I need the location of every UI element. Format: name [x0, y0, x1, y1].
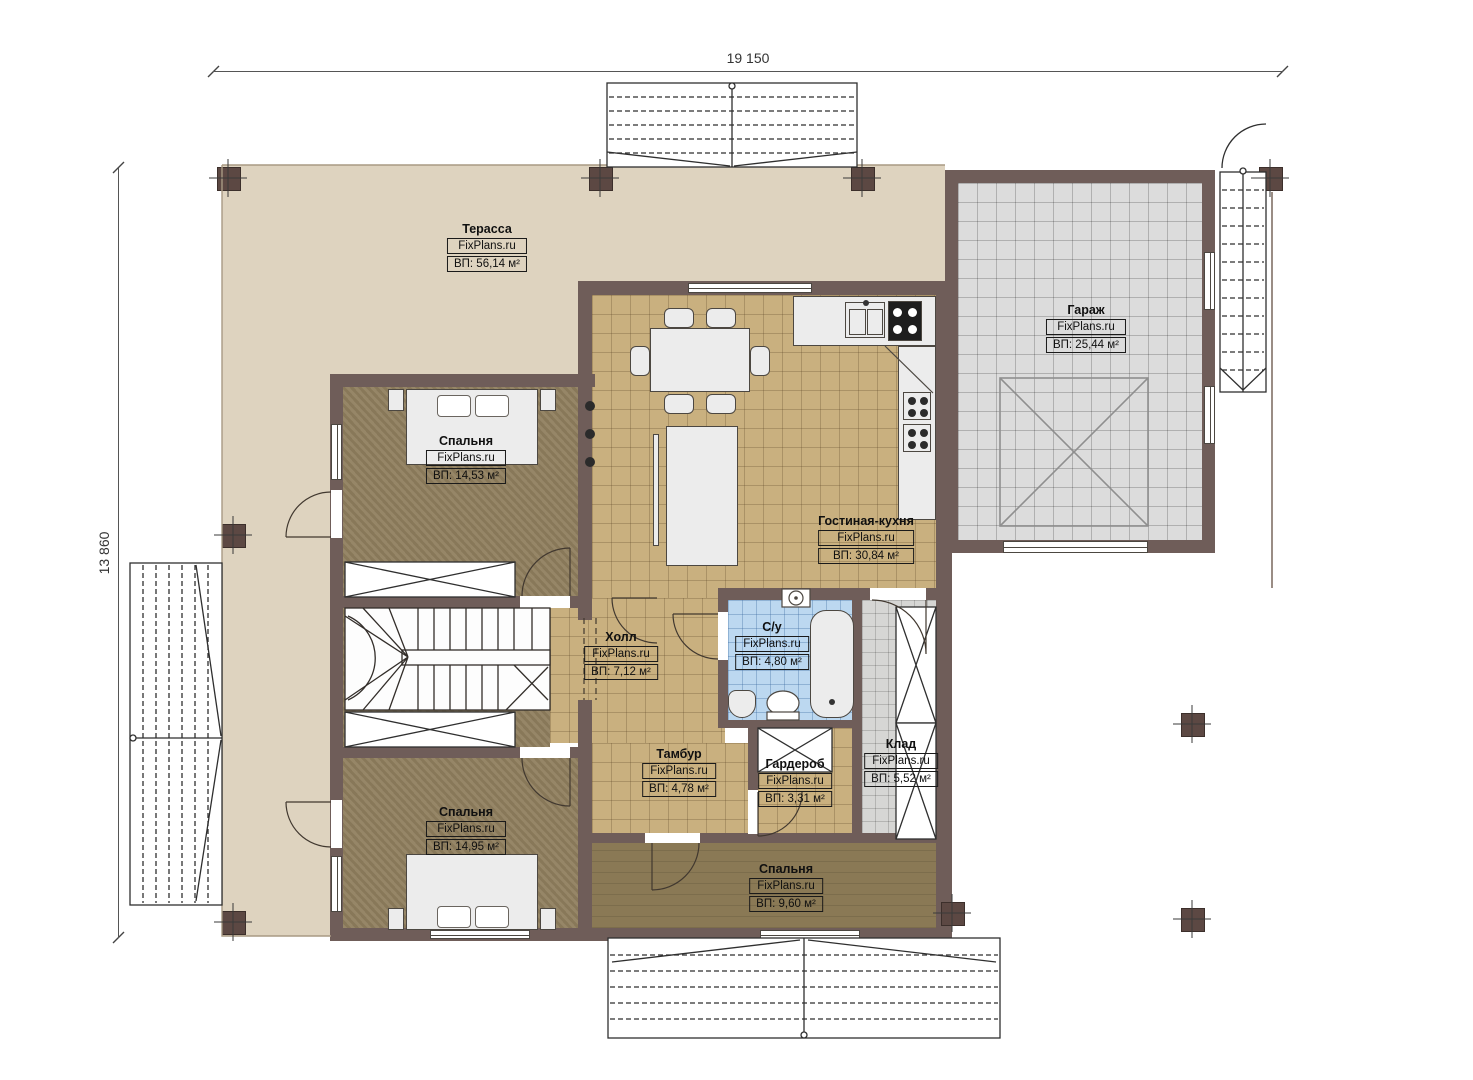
- chair: [706, 394, 736, 414]
- room-brand: FixPlans.ru: [584, 646, 658, 662]
- burner: [920, 397, 928, 405]
- room-label-bedroom-1: Спальня FixPlans.ru ВП: 14,53 м²: [426, 434, 506, 484]
- floor-stair-zone: [343, 596, 550, 750]
- sofa: [666, 426, 738, 566]
- room-brand: FixPlans.ru: [1046, 319, 1126, 335]
- column: [222, 524, 246, 548]
- room-area: ВП: 30,84 м²: [818, 548, 914, 564]
- door-opening: [520, 596, 570, 608]
- wall: [718, 588, 870, 600]
- burner: [893, 308, 902, 317]
- column: [217, 167, 241, 191]
- sink-basin: [849, 309, 866, 335]
- wall: [718, 660, 728, 728]
- floor-terrace-top: [222, 165, 945, 291]
- room-name: Гараж: [1046, 303, 1126, 317]
- burner: [920, 429, 928, 437]
- room-name: Гостиная-кухня: [818, 514, 914, 528]
- floor-terrace-left: [222, 375, 330, 936]
- room-area: ВП: 3,31 м²: [758, 791, 832, 807]
- window: [331, 856, 342, 912]
- window: [331, 424, 342, 480]
- steps-top: [607, 83, 857, 167]
- column: [1181, 908, 1205, 932]
- steps-garage-side: [1220, 124, 1266, 392]
- pillow: [437, 906, 471, 928]
- door-opening: [331, 800, 342, 848]
- door-opening: [331, 490, 342, 538]
- dimension-line-top: [213, 71, 1283, 72]
- room-label-hall: Холл FixPlans.ru ВП: 7,12 м²: [584, 630, 658, 680]
- pillow: [475, 906, 509, 928]
- column: [589, 167, 613, 191]
- room-area: ВП: 4,80 м²: [735, 654, 809, 670]
- appliance: [903, 392, 931, 420]
- room-brand: FixPlans.ru: [758, 773, 832, 789]
- room-name: Спальня: [426, 434, 506, 448]
- room-name: Холл: [584, 630, 658, 644]
- room-area: ВП: 4,78 м²: [642, 781, 716, 797]
- room-label-vestibule: Тамбур FixPlans.ru ВП: 4,78 м²: [642, 747, 716, 797]
- nightstand: [540, 908, 556, 930]
- floor-storage: [862, 600, 936, 833]
- dimension-height: 13 860: [96, 523, 112, 583]
- nightstand: [388, 389, 404, 411]
- room-name: Спальня: [426, 805, 506, 819]
- window: [1204, 252, 1215, 310]
- chair: [664, 308, 694, 328]
- room-brand: FixPlans.ru: [642, 763, 716, 779]
- wall: [926, 588, 936, 600]
- wall: [718, 600, 728, 612]
- chair: [706, 308, 736, 328]
- room-name: С/у: [735, 620, 809, 634]
- kitchen-sink: [845, 302, 885, 338]
- window: [688, 283, 812, 293]
- dining-table: [650, 328, 750, 392]
- room-label-bathroom: С/у FixPlans.ru ВП: 4,80 м²: [735, 620, 809, 670]
- stove: [888, 301, 922, 341]
- room-area: ВП: 56,14 м²: [447, 256, 527, 272]
- chair: [664, 394, 694, 414]
- room-name: Гардероб: [758, 757, 832, 771]
- burner: [908, 441, 916, 449]
- nightstand: [540, 389, 556, 411]
- column: [222, 911, 246, 935]
- column: [851, 167, 875, 191]
- garage-gate: [1003, 541, 1148, 553]
- sink-basin: [867, 309, 883, 335]
- room-area: ВП: 14,53 м²: [426, 468, 506, 484]
- wall: [718, 720, 862, 728]
- room-area: ВП: 7,12 м²: [584, 664, 658, 680]
- chair: [750, 346, 770, 376]
- bed: [406, 854, 538, 930]
- room-brand: FixPlans.ru: [735, 636, 809, 652]
- wall: [570, 747, 592, 758]
- window: [430, 930, 530, 939]
- burner: [920, 441, 928, 449]
- pillow: [475, 395, 509, 417]
- wall: [570, 596, 592, 608]
- dimension-line-left: [118, 168, 119, 938]
- room-name: Клад: [864, 737, 938, 751]
- burner: [893, 325, 902, 334]
- room-label-wardrobe: Гардероб FixPlans.ru ВП: 3,31 м²: [758, 757, 832, 807]
- burner: [908, 409, 916, 417]
- room-area: ВП: 9,60 м²: [749, 896, 823, 912]
- burner: [908, 429, 916, 437]
- pillow: [437, 395, 471, 417]
- burner: [920, 409, 928, 417]
- bathroom-sink: [728, 690, 756, 718]
- wall: [330, 747, 520, 758]
- column: [1181, 713, 1205, 737]
- door-opening: [748, 790, 758, 834]
- room-label-terrace: Терасса FixPlans.ru ВП: 56,14 м²: [447, 222, 527, 272]
- wall: [578, 387, 592, 620]
- room-label-storage: Клад FixPlans.ru ВП: 5,52 м²: [864, 737, 938, 787]
- wall: [330, 374, 595, 387]
- nightstand: [388, 908, 404, 930]
- floor-plan-canvas: 19 150 13 860 Терасса FixPlans.ru ВП: 56…: [0, 0, 1473, 1080]
- room-brand: FixPlans.ru: [426, 450, 506, 466]
- wall: [748, 728, 758, 790]
- wall: [936, 600, 952, 940]
- room-brand: FixPlans.ru: [426, 821, 506, 837]
- room-name: Терасса: [447, 222, 527, 236]
- room-label-bedroom-3: Спальня FixPlans.ru ВП: 9,60 м²: [749, 862, 823, 912]
- room-label-garage: Гараж FixPlans.ru ВП: 25,44 м²: [1046, 303, 1126, 353]
- room-brand: FixPlans.ru: [447, 238, 527, 254]
- appliance: [903, 424, 931, 452]
- chair: [630, 346, 650, 376]
- wall: [578, 281, 592, 387]
- floor-garage: [958, 183, 1202, 540]
- floor-terrace-mid: [222, 291, 580, 375]
- door-opening: [520, 747, 570, 758]
- sofa-back: [653, 434, 659, 546]
- steps-bottom: [608, 938, 1000, 1038]
- steps-left: [130, 563, 222, 905]
- door-opening: [645, 833, 700, 843]
- wall: [700, 833, 952, 843]
- room-brand: FixPlans.ru: [864, 753, 938, 769]
- wall: [330, 596, 520, 608]
- dimension-width: 19 150: [213, 50, 1283, 66]
- room-area: ВП: 14,95 м²: [426, 839, 506, 855]
- room-name: Тамбур: [642, 747, 716, 761]
- burner: [908, 397, 916, 405]
- room-label-living-kitchen: Гостиная-кухня FixPlans.ru ВП: 30,84 м²: [818, 514, 914, 564]
- window: [1204, 386, 1215, 444]
- door-opening: [870, 588, 926, 600]
- room-label-bedroom-2: Спальня FixPlans.ru ВП: 14,95 м²: [426, 805, 506, 855]
- room-brand: FixPlans.ru: [818, 530, 914, 546]
- room-name: Спальня: [749, 862, 823, 876]
- bathtub: [810, 610, 854, 718]
- room-area: ВП: 25,44 м²: [1046, 337, 1126, 353]
- window: [760, 930, 860, 939]
- door-opening: [718, 612, 728, 660]
- wall: [578, 700, 592, 940]
- wall: [592, 833, 645, 843]
- burner: [908, 308, 917, 317]
- room-area: ВП: 5,52 м²: [864, 771, 938, 787]
- room-brand: FixPlans.ru: [749, 878, 823, 894]
- burner: [908, 325, 917, 334]
- column: [941, 902, 965, 926]
- column: [1259, 167, 1283, 191]
